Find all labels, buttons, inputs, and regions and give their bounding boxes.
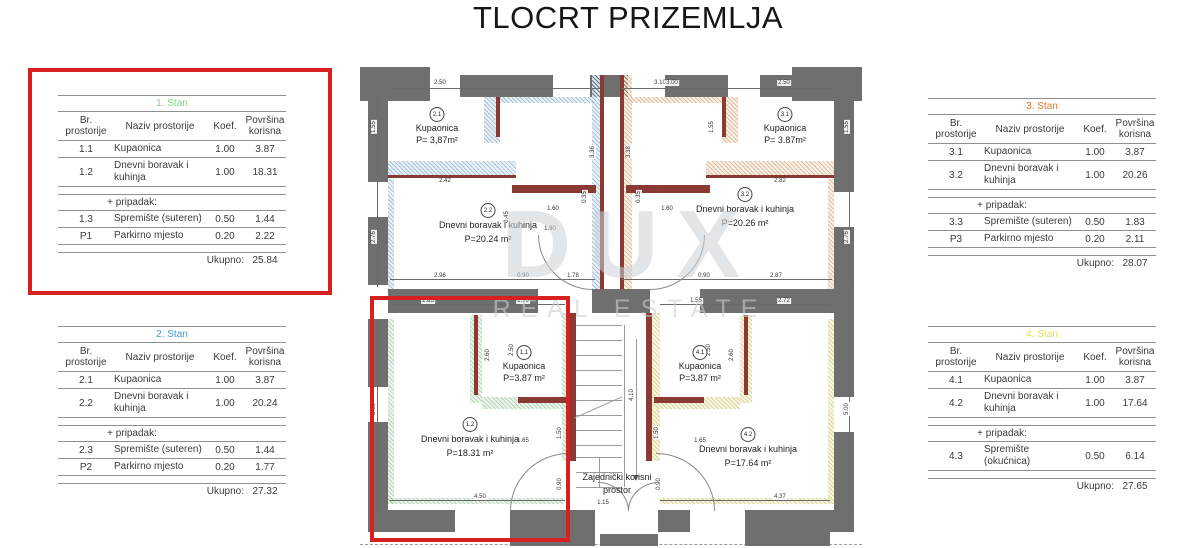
stan-3-table: 3. StanBr. prostorijeNaziv prostorijeKoe… xyxy=(928,98,1156,271)
table-cell: 1.00 xyxy=(1076,170,1114,181)
table-cell: 0.50 xyxy=(206,445,244,456)
table-cell: 3.87 xyxy=(1114,375,1156,386)
dimension-label: 0.35 xyxy=(636,190,642,204)
wall xyxy=(592,289,650,313)
total-value: 27.32 xyxy=(244,486,286,497)
table-cell: 1.00 xyxy=(206,375,244,386)
dimension-label: 2.76 xyxy=(844,230,850,244)
table-row: P3Parkirno mjesto0.202.11 xyxy=(928,231,1156,248)
dimension-line xyxy=(377,97,378,287)
door-arc-unit3 xyxy=(650,235,705,290)
dimension-label: 1.55 xyxy=(371,120,377,134)
common-area-label-line2: prostor xyxy=(603,485,631,495)
table-cell: 0.50 xyxy=(1076,451,1114,462)
room-number-4-2: 4.2 xyxy=(741,427,756,442)
table-cell: 3.2 xyxy=(928,170,984,181)
column-header: Naziv prostorije xyxy=(984,124,1076,135)
dimension-label: 1.50 xyxy=(654,426,660,440)
dimension-label: 2.82 xyxy=(773,178,787,184)
column-header: Br. prostorije xyxy=(928,346,984,368)
column-header: Br. prostorije xyxy=(58,346,114,368)
dimension-label: 4.37 xyxy=(773,494,787,500)
hatch-wall xyxy=(828,179,834,289)
dimension-label: 0.35 xyxy=(582,190,588,204)
room-number-2-1: 2.1 xyxy=(430,107,445,122)
dimension-label: 1.15 xyxy=(596,500,610,506)
section-label: + pripadak: xyxy=(928,200,1076,211)
stan1-plan-highlight-box xyxy=(370,296,570,542)
room-area-2-1: P= 3,87m² xyxy=(416,135,458,145)
dimension-label: 0.90 xyxy=(697,273,711,279)
column-header: Koef. xyxy=(1076,124,1114,135)
table-section-row: + pripadak: xyxy=(928,426,1156,442)
room-name-2-1: Kupaonica xyxy=(416,123,459,133)
wall xyxy=(658,510,690,532)
wall xyxy=(600,534,658,546)
room-number-3-1: 3.1 xyxy=(778,107,793,122)
table-total-row: Ukupno:28.07 xyxy=(928,256,1156,271)
table-row: 4.2Dnevni boravak i kuhinja1.0017.64 xyxy=(928,389,1156,418)
page-title: TLOCRT PRIZEMLJA xyxy=(473,0,783,36)
stan-table-title: 4. Stan xyxy=(928,327,1156,343)
table-cell: Spremište (suteren) xyxy=(114,444,206,456)
dimension-label: 2.50 xyxy=(433,80,447,86)
room-area-4-1: P=3.87 m² xyxy=(679,373,721,383)
table-spacer-row xyxy=(928,418,1156,426)
brick-wall xyxy=(600,75,604,289)
room-area-2-2: P=20.24 m² xyxy=(465,234,512,244)
dimension-label: 1.60 xyxy=(660,206,674,212)
room-name-3-2: Dnevni boravak i kuhinja xyxy=(696,204,794,214)
column-header: Naziv prostorije xyxy=(114,352,206,363)
table-cell: 20.24 xyxy=(244,398,286,409)
section-label: + pripadak: xyxy=(58,428,206,439)
stan-table-header-row: Br. prostorijeNaziv prostorijeKoef.Površ… xyxy=(928,115,1156,144)
stair-tread xyxy=(576,415,622,416)
table-cell: Dnevni boravak i kuhinja xyxy=(984,163,1076,187)
room-name-3-1: Kupaonica xyxy=(764,123,807,133)
wall xyxy=(745,532,830,546)
stair-tread xyxy=(576,430,622,431)
stan-table-title: 2. Stan xyxy=(58,327,286,343)
total-label: Ukupno: xyxy=(1076,258,1114,269)
dimension-label: 1.78 xyxy=(566,273,580,279)
table-cell: 20.26 xyxy=(1114,170,1156,181)
dimension-label: 4.10 xyxy=(629,388,635,402)
dimension-label: 2.72 xyxy=(777,298,791,304)
brick-wall xyxy=(646,313,652,461)
table-cell: P2 xyxy=(58,462,114,473)
dimension-label: 1.90 xyxy=(543,226,557,232)
hatch-wall xyxy=(592,75,600,289)
stan-table-header-row: Br. prostorijeNaziv prostorijeKoef.Površ… xyxy=(928,343,1156,372)
table-total-row: Ukupno:27.65 xyxy=(928,479,1156,494)
table-cell: 3.87 xyxy=(1114,147,1156,158)
room-area-4-2: P=17.64 m² xyxy=(725,458,772,468)
stair-line xyxy=(636,339,637,477)
wall xyxy=(834,97,854,192)
column-header: Površina korisna xyxy=(1114,346,1156,368)
dimension-label: 2.87 xyxy=(769,273,783,279)
table-cell: 1.00 xyxy=(1076,375,1114,386)
wall xyxy=(834,227,854,397)
table-cell: Parkirno mjesto xyxy=(114,461,206,473)
table-row: 4.3Spremište (okućnica)0.506.14 xyxy=(928,442,1156,471)
table-cell: 2.1 xyxy=(58,375,114,386)
table-row: 3.1Kupaonica1.003.87 xyxy=(928,144,1156,161)
table-cell: 4.3 xyxy=(928,451,984,462)
table-cell: 3.87 xyxy=(244,375,286,386)
total-label: Ukupno: xyxy=(1076,481,1114,492)
room-number-2-2: 2.2 xyxy=(481,203,496,218)
table-cell: 3.1 xyxy=(928,147,984,158)
table-cell: 17.64 xyxy=(1114,398,1156,409)
brick-wall xyxy=(620,75,624,289)
dimension-line xyxy=(390,88,600,89)
table-cell: 2.11 xyxy=(1114,234,1156,245)
stan-table-title: 3. Stan xyxy=(928,99,1156,115)
hatch-wall xyxy=(500,97,596,103)
table-cell: 1.00 xyxy=(1076,398,1114,409)
dimension-label: 3.36 xyxy=(590,145,596,159)
brick-wall xyxy=(654,397,704,403)
brick-wall xyxy=(744,315,748,395)
stan-4-table: 4. StanBr. prostorijeNaziv prostorijeKoe… xyxy=(928,326,1156,494)
dimension-label: 2.42 xyxy=(438,178,452,184)
wall xyxy=(665,75,728,97)
wall xyxy=(700,289,834,313)
hatch-wall xyxy=(828,319,834,504)
page: { "title": "TLOCRT PRIZEMLJA", "colors":… xyxy=(0,0,1200,548)
total-label: Ukupno: xyxy=(206,486,244,497)
table-spacer-row xyxy=(928,190,1156,198)
room-name-2-2: Dnevni boravak i kuhinja xyxy=(439,220,537,230)
dimension-line xyxy=(622,88,832,89)
brick-wall xyxy=(496,97,500,137)
table-row: 3.2Dnevni boravak i kuhinja1.0020.26 xyxy=(928,161,1156,190)
stan-table-header-row: Br. prostorijeNaziv prostorijeKoef.Površ… xyxy=(58,343,286,372)
room-number-3-2: 3.2 xyxy=(738,187,753,202)
table-section-row: + pripadak: xyxy=(928,198,1156,214)
dimension-line xyxy=(660,304,830,305)
table-spacer-row xyxy=(928,471,1156,479)
table-cell: Spremište (suteren) xyxy=(984,216,1076,228)
wall xyxy=(792,67,862,101)
table-cell: 6.14 xyxy=(1114,451,1156,462)
room-name-4-2: Dnevni boravak i kuhinja xyxy=(699,444,797,454)
table-cell: 4.2 xyxy=(928,398,984,409)
table-row: 2.2Dnevni boravak i kuhinja1.0020.24 xyxy=(58,389,286,418)
dimension-label: 3.00 xyxy=(665,80,679,86)
wall xyxy=(834,432,854,512)
table-cell: 1.00 xyxy=(206,398,244,409)
table-row: 4.1Kupaonica1.003.87 xyxy=(928,372,1156,389)
table-spacer-row xyxy=(58,418,286,426)
dimension-label: 2.50 xyxy=(777,80,791,86)
dimension-label: 2.60 xyxy=(729,348,735,362)
brick-wall xyxy=(722,97,726,137)
table-section-row: + pripadak: xyxy=(58,426,286,442)
table-cell: 3.3 xyxy=(928,217,984,228)
floor-plan: DUX REAL ESTATE 2.1 Kupaonica P= 3,87m² … xyxy=(360,57,862,548)
hatch-wall xyxy=(628,97,722,103)
table-row: P2Parkirno mjesto0.201.77 xyxy=(58,459,286,476)
wall xyxy=(745,510,854,532)
table-spacer-row xyxy=(58,476,286,484)
stan-2-table: 2. StanBr. prostorijeNaziv prostorijeKoe… xyxy=(58,326,286,499)
brick-wall xyxy=(706,175,834,178)
door-arc-unit4 xyxy=(656,453,715,511)
column-header: Površina korisna xyxy=(1114,118,1156,140)
table-spacer-row xyxy=(928,248,1156,256)
room-area-3-1: P= 3.87m² xyxy=(764,135,806,145)
room-number-4-1: 4.1 xyxy=(693,345,708,360)
brick-wall xyxy=(570,313,576,461)
entry-door-arc-right xyxy=(628,482,659,511)
table-cell: Parkirno mjesto xyxy=(984,233,1076,245)
wall xyxy=(368,97,388,182)
stair-tread xyxy=(576,445,622,446)
column-header: Naziv prostorije xyxy=(984,352,1076,363)
column-header: Br. prostorije xyxy=(928,118,984,140)
table-cell: 0.20 xyxy=(206,462,244,473)
table-cell: Kupaonica xyxy=(984,374,1076,386)
table-cell: Kupaonica xyxy=(984,146,1076,158)
dimension-label: 2.96 xyxy=(433,273,447,279)
table-cell: 0.50 xyxy=(1076,217,1114,228)
dimension-label: 5.00 xyxy=(844,402,850,416)
room-area-3-2: P=20.26 m² xyxy=(722,218,769,228)
table-cell: 1.44 xyxy=(244,445,286,456)
table-cell: 1.00 xyxy=(1076,147,1114,158)
column-header: Koef. xyxy=(206,352,244,363)
table-row: 2.1Kupaonica1.003.87 xyxy=(58,372,286,389)
stan1-table-highlight-box xyxy=(28,68,332,295)
common-area-label-line1: Zajednički korisni xyxy=(582,472,651,482)
brick-wall xyxy=(388,175,516,178)
dimension-label: 1.60 xyxy=(546,206,560,212)
door-arc-unit2 xyxy=(538,235,593,290)
table-cell: 1.77 xyxy=(244,462,286,473)
hatch-wall xyxy=(388,179,394,289)
table-cell: P3 xyxy=(928,234,984,245)
wall xyxy=(368,217,388,285)
wall xyxy=(460,75,553,97)
stair-line xyxy=(624,325,625,487)
total-value: 28.07 xyxy=(1114,258,1156,269)
table-cell: 0.20 xyxy=(1076,234,1114,245)
room-name-4-1: Kupaonica xyxy=(679,361,722,371)
table-cell: 1.83 xyxy=(1114,217,1156,228)
total-value: 27.65 xyxy=(1114,481,1156,492)
hatch-wall xyxy=(624,75,632,289)
table-cell: Dnevni boravak i kuhinja xyxy=(984,391,1076,415)
dimension-label: 2.76 xyxy=(371,230,377,244)
table-cell: Dnevni boravak i kuhinja xyxy=(114,391,206,415)
table-cell: Kupaonica xyxy=(114,374,206,386)
wall xyxy=(360,67,430,101)
dimension-label: 1.55 xyxy=(689,298,703,304)
dimension-label: 3.38 xyxy=(626,145,632,159)
section-label: + pripadak: xyxy=(928,428,1076,439)
dimension-label: 0.90 xyxy=(656,477,662,491)
stair-tread xyxy=(576,370,622,371)
stair-tread xyxy=(576,325,622,326)
table-cell: 2.2 xyxy=(58,398,114,409)
dimension-label: 1.55 xyxy=(844,120,850,134)
stair-tread xyxy=(576,355,622,356)
stair-tread xyxy=(576,385,622,386)
column-header: Površina korisna xyxy=(244,346,286,368)
dimension-label: 0.90 xyxy=(516,273,530,279)
table-row: 3.3Spremište (suteren)0.501.83 xyxy=(928,214,1156,231)
column-header: Koef. xyxy=(1076,352,1114,363)
table-row: 2.3Spremište (suteren)0.501.44 xyxy=(58,442,286,459)
dimension-label: 1.55 xyxy=(709,120,715,134)
stair-tread xyxy=(576,340,622,341)
table-total-row: Ukupno:27.32 xyxy=(58,484,286,499)
table-cell: 2.3 xyxy=(58,445,114,456)
table-cell: 4.1 xyxy=(928,375,984,386)
table-cell: Spremište (okućnica) xyxy=(984,444,1076,468)
